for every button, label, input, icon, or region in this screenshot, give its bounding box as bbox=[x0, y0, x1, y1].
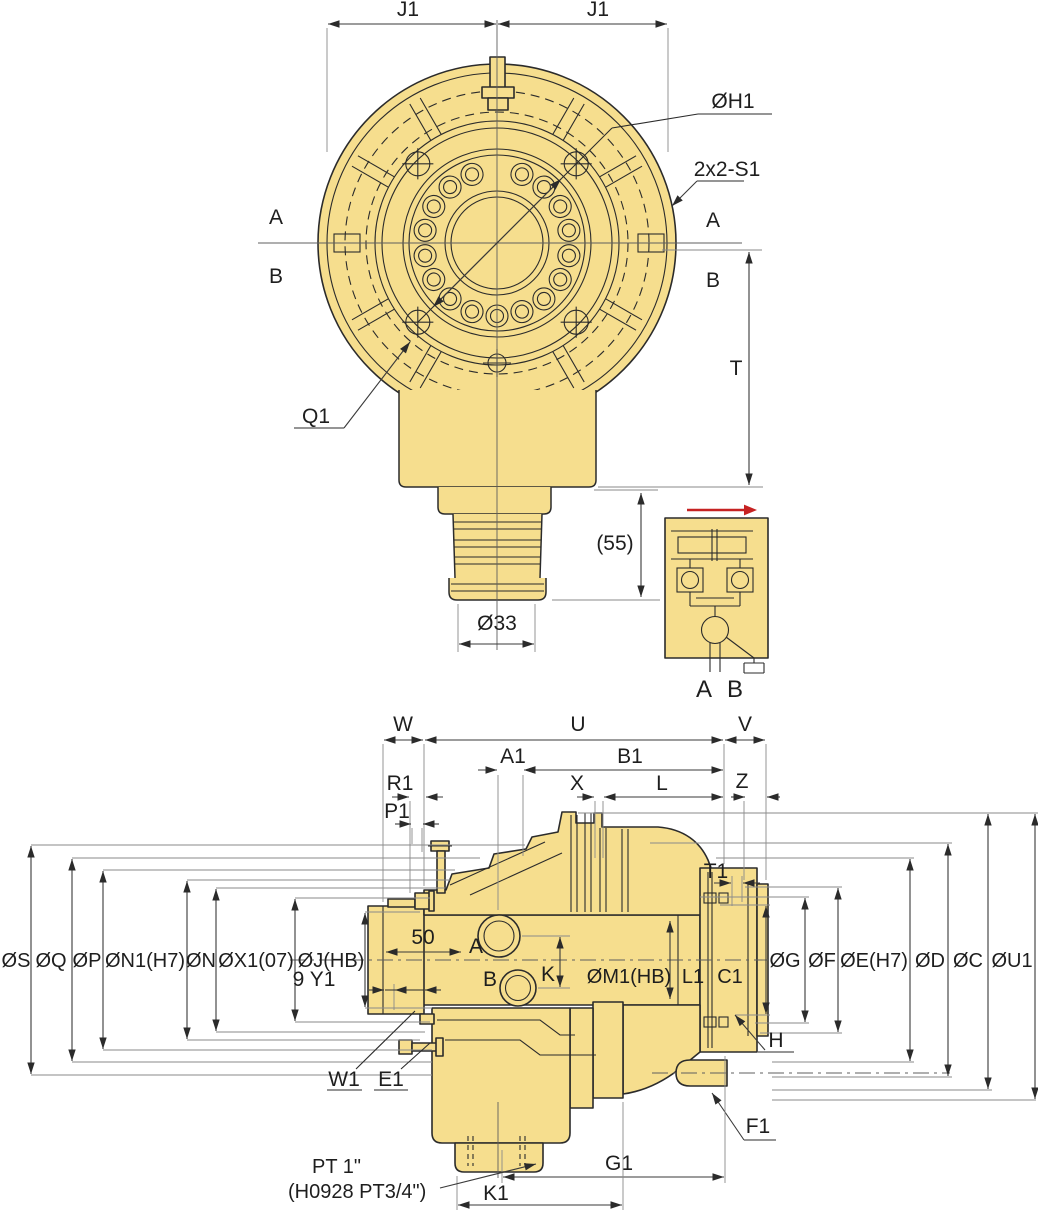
dim-t-label: T bbox=[730, 357, 743, 380]
dim-k1-label: K1 bbox=[483, 1182, 509, 1205]
right-dim-d: ØD bbox=[915, 950, 945, 972]
dim-p1-label: P1 bbox=[384, 800, 410, 823]
dim-55-label: (55) bbox=[596, 532, 633, 555]
dim-l-label: L bbox=[656, 772, 668, 795]
note-pt-line1: PT 1" bbox=[312, 1156, 361, 1178]
dim-l1-label: L1 bbox=[682, 966, 704, 988]
dim-v-label: V bbox=[738, 713, 752, 736]
right-dim-u1: ØU1 bbox=[991, 950, 1032, 972]
technical-drawing: J1 J1 ØH1 2x2-S1 A B A B T bbox=[0, 0, 1038, 1212]
dim-x-label: X bbox=[570, 772, 584, 795]
dim-r1: R1 bbox=[387, 772, 443, 893]
dim-k-label: K bbox=[541, 963, 555, 986]
lower-housing bbox=[432, 1002, 727, 1178]
right-dim-f: ØF bbox=[808, 950, 836, 972]
side-section-view: W U V A1 B1 X L Z bbox=[2, 713, 1038, 1210]
left-dim-x1: ØX1(07) bbox=[218, 950, 294, 972]
dim-b1-label: B1 bbox=[617, 745, 643, 768]
section-a-left: A bbox=[269, 206, 283, 229]
dim-c1-label: C1 bbox=[717, 966, 743, 988]
dim-33: Ø33 bbox=[458, 604, 535, 652]
right-dim-e: ØE(H7) bbox=[840, 950, 908, 972]
dim-j1-right-label: J1 bbox=[587, 0, 609, 21]
dim-w-label: W bbox=[393, 713, 413, 736]
left-dim-s: ØS bbox=[2, 950, 31, 972]
section-b-right: B bbox=[706, 269, 720, 292]
left-dim-n: ØN bbox=[186, 950, 216, 972]
side-port-b-label: B bbox=[483, 968, 497, 991]
detail-port-b: B bbox=[727, 676, 743, 703]
left-dim-n1: ØN1(H7) bbox=[105, 950, 185, 972]
drawing-page: J1 J1 ØH1 2x2-S1 A B A B T bbox=[0, 0, 1038, 1212]
right-dim-c: ØC bbox=[953, 950, 983, 972]
dim-t1-label: T1 bbox=[704, 860, 729, 883]
d33-label: Ø33 bbox=[477, 612, 517, 635]
left-dim-q: ØQ bbox=[35, 950, 66, 972]
label-s1: 2x2-S1 bbox=[672, 158, 760, 206]
top-housing bbox=[424, 812, 716, 915]
section-a-right: A bbox=[706, 209, 720, 232]
dim-z-label: Z bbox=[736, 770, 749, 793]
label-h-text: H bbox=[768, 1029, 783, 1052]
label-w1-text: W1 bbox=[328, 1068, 360, 1091]
dim-r1-label: R1 bbox=[387, 772, 414, 795]
dim-g1-label: G1 bbox=[605, 1152, 633, 1175]
right-dim-g: ØG bbox=[769, 950, 800, 972]
dim-50-label: 50 bbox=[411, 926, 434, 949]
dim-h1-label: ØH1 bbox=[711, 90, 754, 113]
label-e1-text: E1 bbox=[378, 1068, 404, 1091]
dim-m1-label: ØM1(HB) bbox=[587, 966, 671, 988]
detail-port-a: A bbox=[696, 676, 712, 703]
dim-55: (55) bbox=[552, 490, 660, 600]
dim-j1-left-label: J1 bbox=[397, 0, 419, 21]
label-f1: F1 bbox=[712, 1093, 776, 1140]
dim-u-label: U bbox=[570, 713, 585, 736]
label-f1-text: F1 bbox=[746, 1115, 771, 1138]
note-pt-line2: (H0928 PT3/4") bbox=[288, 1181, 426, 1203]
section-b-left: B bbox=[269, 265, 283, 288]
dim-9-y1-label: 9 Y1 bbox=[293, 968, 336, 991]
dim-a1-label: A1 bbox=[500, 745, 526, 768]
label-q1-text: Q1 bbox=[302, 405, 330, 428]
label-s1-text: 2x2-S1 bbox=[694, 158, 761, 181]
detail-view: A B bbox=[665, 505, 768, 703]
left-dim-p: ØP bbox=[73, 950, 102, 972]
side-port-a-label: A bbox=[469, 935, 483, 958]
front-lower-housing bbox=[399, 390, 596, 600]
